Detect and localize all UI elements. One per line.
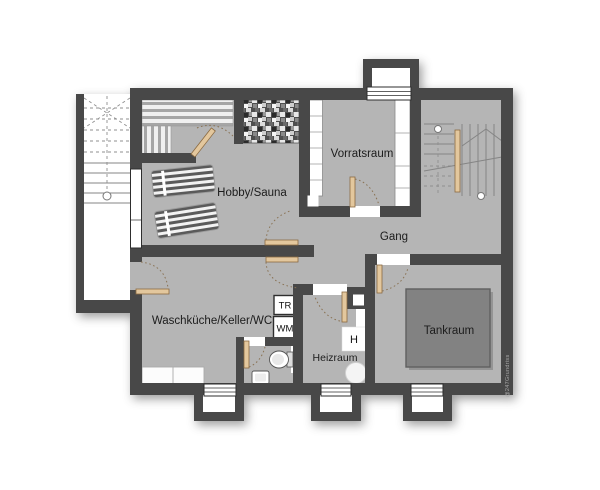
wall-niche [308, 196, 319, 207]
label-waschkueche: Waschküche/Keller/WC [152, 315, 272, 327]
chimney-flue [353, 295, 364, 306]
watermark-text: @247Grundriss [505, 355, 511, 398]
label-gang: Gang [380, 231, 408, 243]
sauna-lounger [151, 165, 215, 198]
newel-post [103, 192, 111, 200]
boiler-tank-circle [346, 363, 367, 384]
boilerroom-door-leaf [342, 292, 347, 322]
building: Hobby/Sauna Vorratsraum Gang Waschküche/… [76, 59, 513, 421]
label-heater: H [350, 334, 358, 346]
label-washer: WM [277, 324, 294, 335]
entrance-door-leaf [136, 289, 169, 294]
sink [252, 371, 269, 384]
wc-door-leaf [244, 341, 249, 368]
flue-duct [356, 306, 366, 328]
label-dryer: TR [279, 301, 292, 312]
hobby-door-leaf [265, 240, 298, 245]
tiled-shower-area [243, 100, 299, 143]
floor-plan-svg: Hobby/Sauna Vorratsraum Gang Waschküche/… [0, 0, 600, 490]
label-heizraum: Heizraum [313, 352, 358, 364]
floor-plan-page: Hobby/Sauna Vorratsraum Gang Waschküche/… [0, 0, 600, 490]
label-vorratsraum: Vorratsraum [331, 148, 394, 160]
toilet [270, 351, 294, 368]
stair-handrail [455, 130, 460, 192]
label-hobby-sauna: Hobby/Sauna [217, 187, 287, 199]
laundry-door-leaf [266, 257, 298, 262]
exterior-staircase-left [84, 94, 130, 300]
label-tankraum: Tankraum [424, 325, 475, 337]
storage-door-leaf [350, 177, 355, 207]
tankroom-door-leaf [377, 265, 382, 293]
